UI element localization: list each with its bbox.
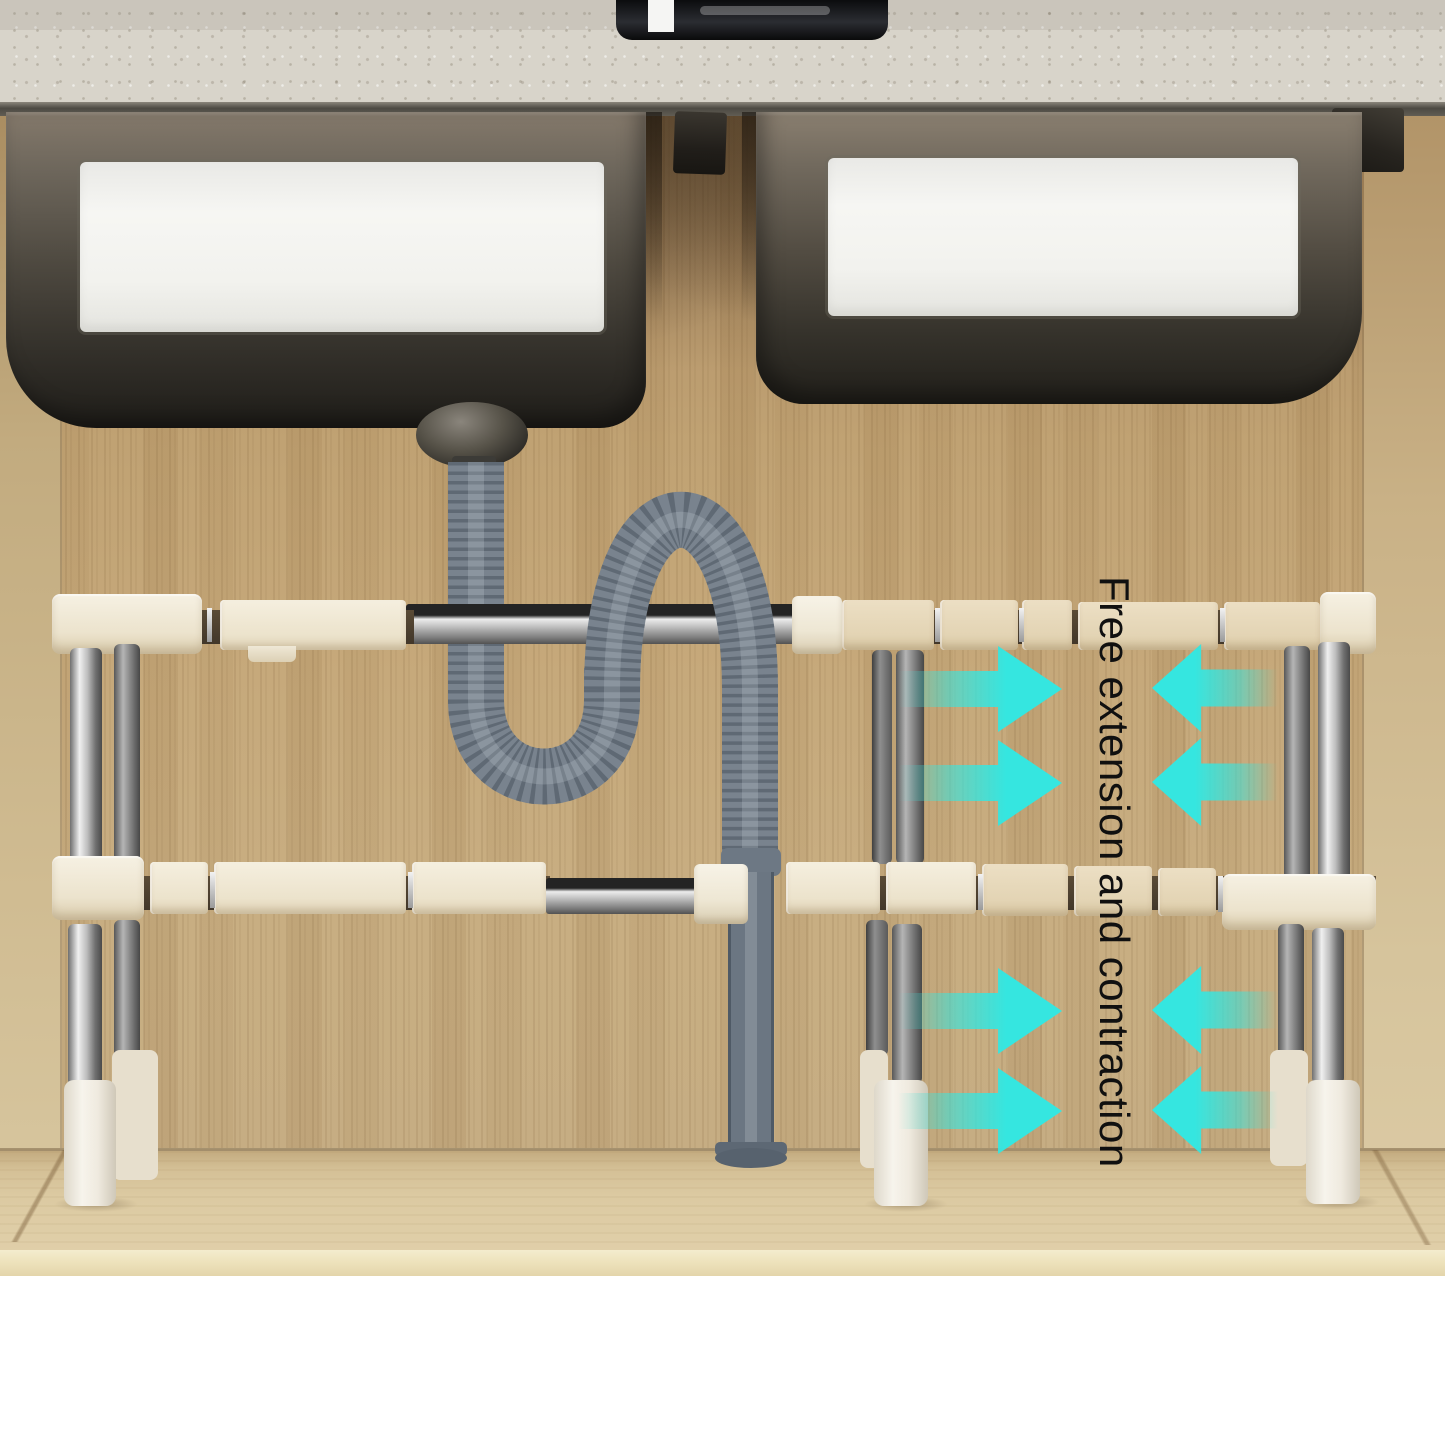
product-photo: Free extension and contraction [0, 0, 1445, 1445]
lower-shelf-slat [214, 862, 406, 914]
lower-shelf-slat [412, 862, 546, 914]
lower-shelf-end-cap-left [52, 856, 144, 920]
chrome-glint [935, 608, 940, 642]
top-shelf-lock-tab [248, 646, 296, 662]
chrome-glint [978, 874, 983, 910]
chrome-glint [1218, 876, 1223, 912]
top-shelf-slat [1022, 600, 1072, 650]
rack-leg-pole [1312, 928, 1344, 1084]
chrome-glint [408, 872, 413, 908]
rack-leg-pole [68, 924, 102, 1086]
top-shelf-clamp [792, 596, 842, 654]
rack-upright-pole [70, 648, 102, 864]
lower-shelf-telescoping-bar [546, 878, 702, 914]
rack-upright-pole [872, 650, 892, 864]
rack-upright-pole [1318, 642, 1350, 880]
chrome-glint [1220, 608, 1225, 642]
top-shelf-slat [220, 600, 406, 650]
rack-foot [64, 1080, 116, 1206]
lower-shelf-slat [982, 864, 1068, 916]
rack-upright-pole [114, 644, 140, 864]
lower-shelf-end-cap-right [1222, 874, 1376, 930]
drain-pipe-front [0, 0, 1445, 1445]
lower-shelf-slat [150, 862, 208, 914]
rack-foot [1306, 1080, 1360, 1204]
rack-leg-pole [114, 920, 140, 1060]
rack-foot-rear [112, 1050, 158, 1180]
top-shelf-slat [842, 600, 934, 650]
top-shelf-slat [940, 600, 1018, 650]
top-shelf-slat [1224, 602, 1320, 650]
chrome-glint [210, 872, 215, 908]
chrome-glint [207, 608, 212, 642]
rack-upright-pole [1284, 646, 1310, 880]
caption-free-extension: Free extension and contraction [1090, 576, 1138, 1238]
rack-leg-pole [1278, 924, 1304, 1056]
chrome-glint [1019, 608, 1024, 642]
lower-shelf-clamp [694, 864, 748, 924]
lower-shelf-slat [786, 862, 880, 914]
lower-shelf-slat [886, 862, 976, 914]
lower-shelf-slat [1158, 868, 1216, 916]
rack-leg-pole [866, 920, 888, 1056]
